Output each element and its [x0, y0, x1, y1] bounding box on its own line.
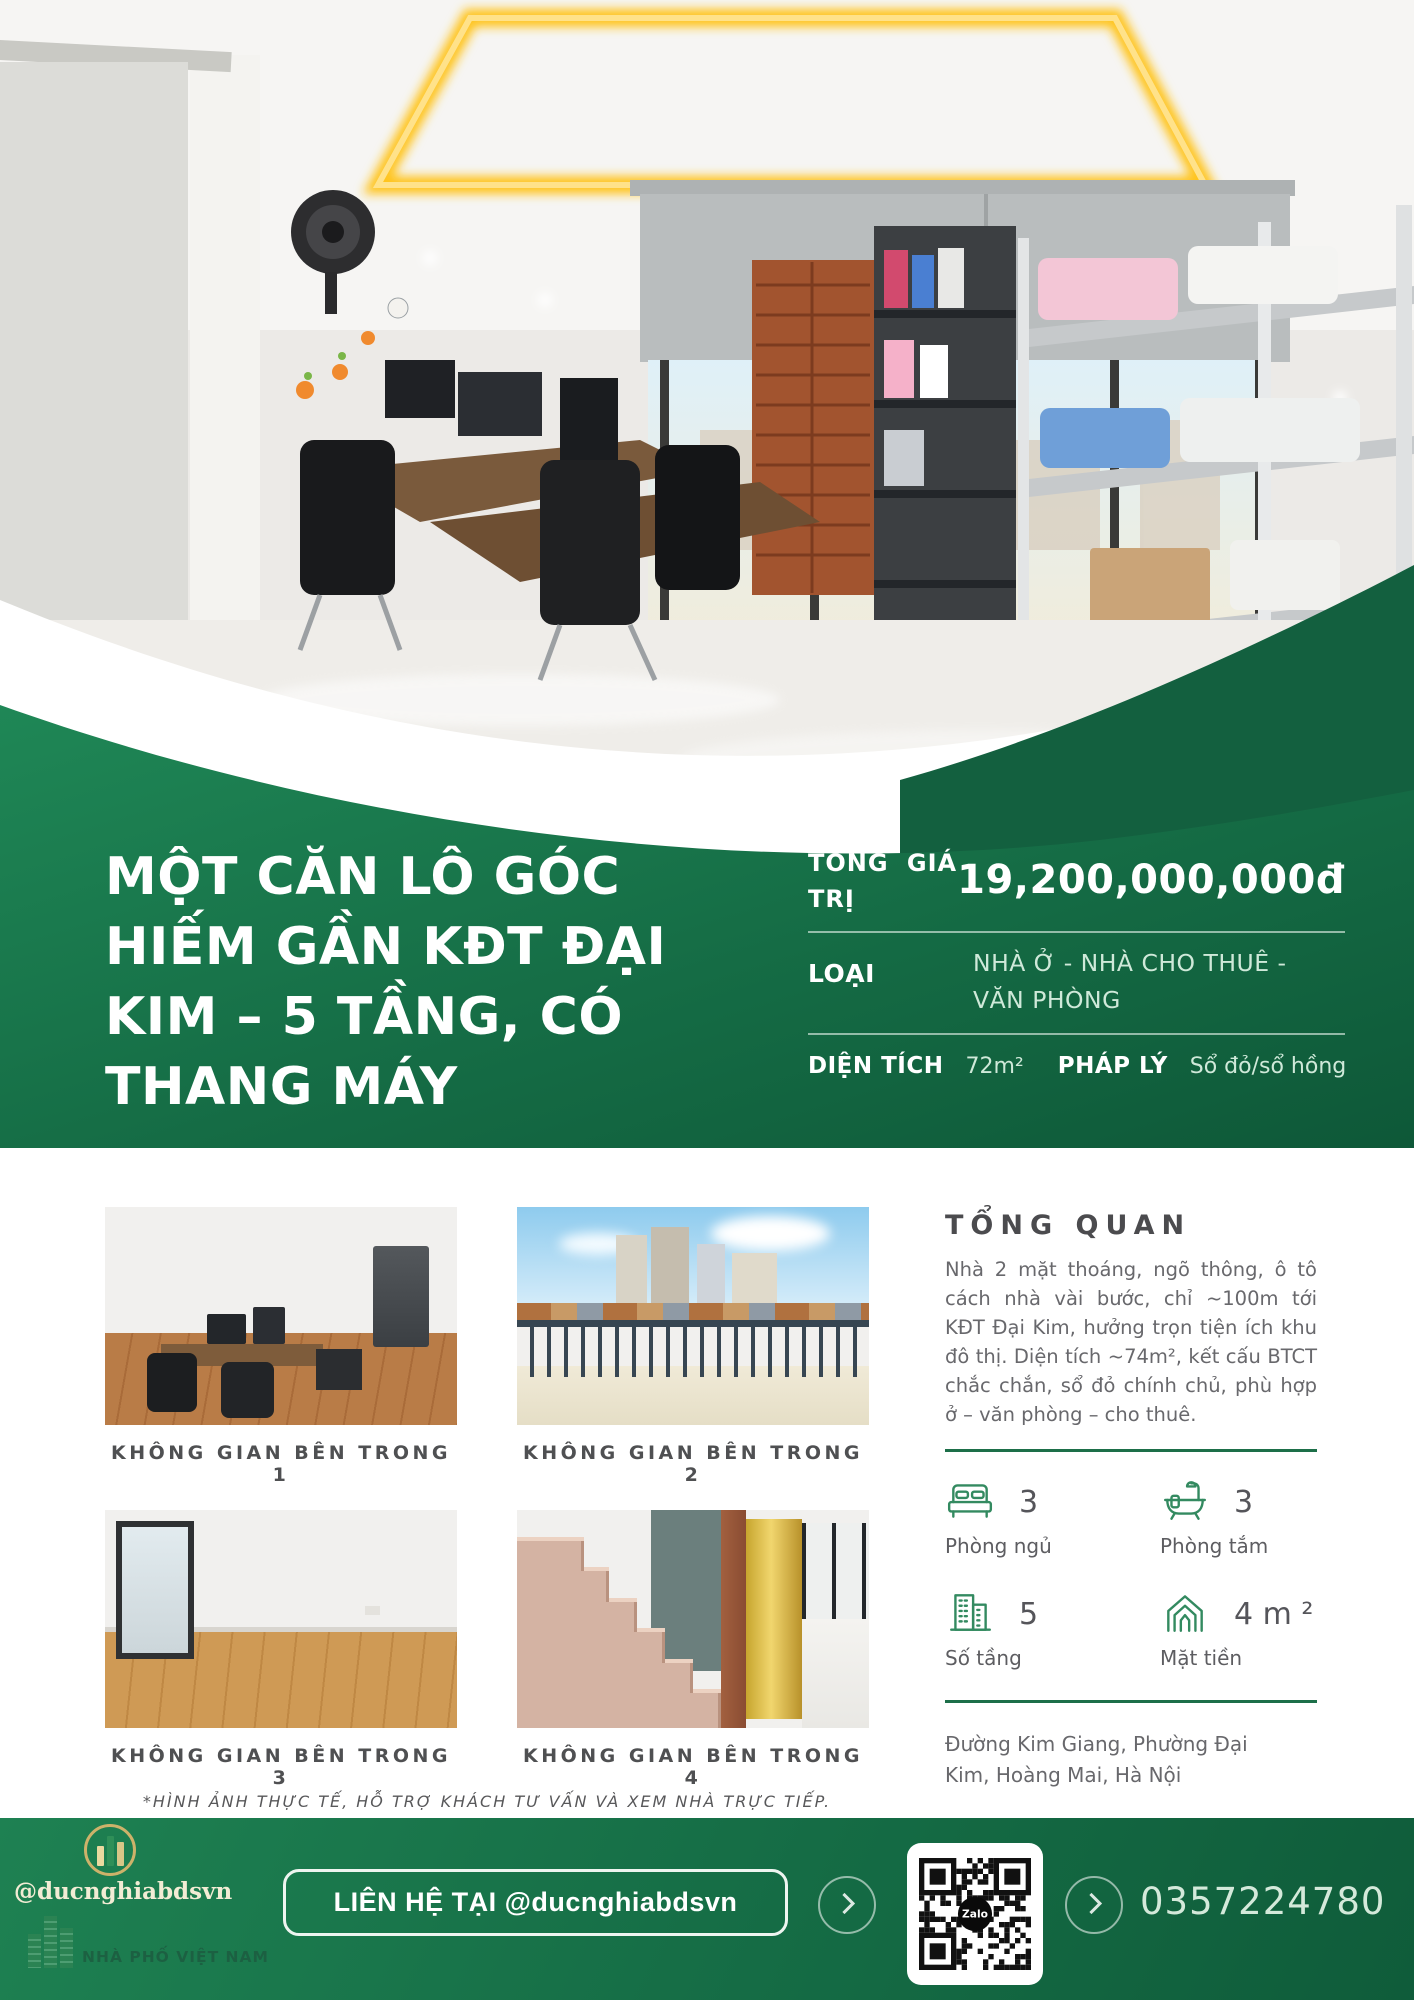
disclaimer-text: *HÌNH ẢNH THỰC TẾ, HỖ TRỢ KHÁCH TƯ VẤN V…: [105, 1792, 869, 1811]
stat-floors-label: Số tầng: [945, 1646, 1160, 1670]
title-line-3: KIM – 5 TẦNG, CÓ: [105, 982, 745, 1052]
stat-floors-value: 5: [1019, 1597, 1038, 1632]
agency-emblem-icon: [84, 1824, 136, 1876]
bed-icon: [945, 1478, 995, 1526]
divider-bottom: [945, 1700, 1317, 1703]
gallery-caption-4: KHÔNG GIAN BÊN TRONG 4: [517, 1745, 869, 1789]
listing-title: MỘT CĂN LÔ GÓC HIẾM GẦN KĐT ĐẠI KIM – 5 …: [105, 842, 745, 1122]
gallery-photo-3: [105, 1510, 457, 1728]
title-line-2: HIẾM GẦN KĐT ĐẠI: [105, 912, 745, 982]
gallery-photo-2: [517, 1207, 869, 1425]
brand-name: NHÀ PHỐ VIỆT NAM: [82, 1948, 269, 1966]
total-price-label: TỔNG GIÁ TRỊ: [808, 845, 957, 917]
address-text: Đường Kim Giang, Phường Đại Kim, Hoàng M…: [945, 1729, 1290, 1791]
area-value: 72m²: [966, 1054, 1024, 1079]
stats-grid: 3 Phòng ngủ 3 Phòng tắm: [945, 1478, 1317, 1670]
property-type-row: LOẠI NHÀ Ở - NHÀ CHO THUÊ - VĂN PHÒNG: [808, 933, 1345, 1035]
stat-bathrooms-label: Phòng tắm: [1160, 1534, 1317, 1558]
divider-top: [945, 1449, 1317, 1452]
stat-frontage: 4 m ² Mặt tiền: [1160, 1590, 1317, 1670]
chevron-right-icon[interactable]: [818, 1876, 876, 1934]
zalo-qr-pattern: Zalo: [919, 1858, 1031, 1970]
total-price-value: 19,200,000,000đ: [957, 845, 1345, 903]
property-type-value: NHÀ Ở - NHÀ CHO THUÊ - VĂN PHÒNG: [973, 945, 1345, 1019]
legal-label: PHÁP LÝ: [1058, 1053, 1168, 1079]
overview-heading: TỔNG QUAN: [945, 1210, 1317, 1241]
chevron-right-icon-2[interactable]: [1065, 1876, 1123, 1934]
legal-value: Sổ đỏ/sổ hồng: [1190, 1054, 1346, 1079]
area-legal-row: DIỆN TÍCH 72m² PHÁP LÝ Sổ đỏ/sổ hồng: [808, 1035, 1345, 1079]
hero-section: MỘT CĂN LÔ GÓC HIẾM GẦN KĐT ĐẠI KIM – 5 …: [0, 0, 1414, 1148]
stat-floors: 5 Số tầng: [945, 1590, 1160, 1670]
stat-bathrooms: 3 Phòng tắm: [1160, 1478, 1317, 1558]
footer-bar: @ducnghiabdsvn NHÀ PHỐ VIỆT NAM LIÊN HỆ …: [0, 1818, 1414, 2000]
price-panel: TỔNG GIÁ TRỊ 19,200,000,000đ LOẠI NHÀ Ở …: [808, 845, 1345, 1079]
brand-buildings-icon: [28, 1916, 73, 1968]
contact-button[interactable]: LIÊN HỆ TẠI @ducnghiabdsvn: [283, 1869, 788, 1936]
bath-icon: [1160, 1478, 1210, 1526]
stat-bedrooms-value: 3: [1019, 1485, 1038, 1520]
gallery-caption-1: KHÔNG GIAN BÊN TRONG 1: [105, 1442, 457, 1486]
stat-bedrooms: 3 Phòng ngủ: [945, 1478, 1160, 1558]
gallery-photo-4: [517, 1510, 869, 1728]
overview-body: Nhà 2 mặt thoáng, ngõ thông, ô tô cách n…: [945, 1255, 1317, 1429]
overview-panel: TỔNG QUAN Nhà 2 mặt thoáng, ngõ thông, ô…: [945, 1210, 1317, 1791]
stat-bathrooms-value: 3: [1234, 1485, 1253, 1520]
property-type-label: LOẠI: [808, 945, 973, 988]
house-icon: [1160, 1590, 1210, 1638]
svg-text:Zalo: Zalo: [962, 1908, 988, 1921]
gallery-photo-1: [105, 1207, 457, 1425]
stat-frontage-value: 4 m ²: [1234, 1597, 1313, 1632]
area-label: DIỆN TÍCH: [808, 1053, 944, 1079]
gallery-caption-3: KHÔNG GIAN BÊN TRONG 3: [105, 1745, 457, 1789]
phone-number[interactable]: 0357224780: [1140, 1880, 1340, 1923]
gallery-caption-2: KHÔNG GIAN BÊN TRONG 2: [517, 1442, 869, 1486]
stat-bedrooms-label: Phòng ngủ: [945, 1534, 1160, 1558]
stat-frontage-label: Mặt tiền: [1160, 1646, 1317, 1670]
title-line-1: MỘT CĂN LÔ GÓC: [105, 842, 745, 912]
zalo-qr-code[interactable]: Zalo: [907, 1843, 1043, 1985]
building-icon: [945, 1590, 995, 1638]
social-handle: @ducnghiabdsvn: [14, 1878, 209, 1905]
title-line-4: THANG MÁY: [105, 1052, 745, 1122]
total-price-row: TỔNG GIÁ TRỊ 19,200,000,000đ: [808, 845, 1345, 933]
